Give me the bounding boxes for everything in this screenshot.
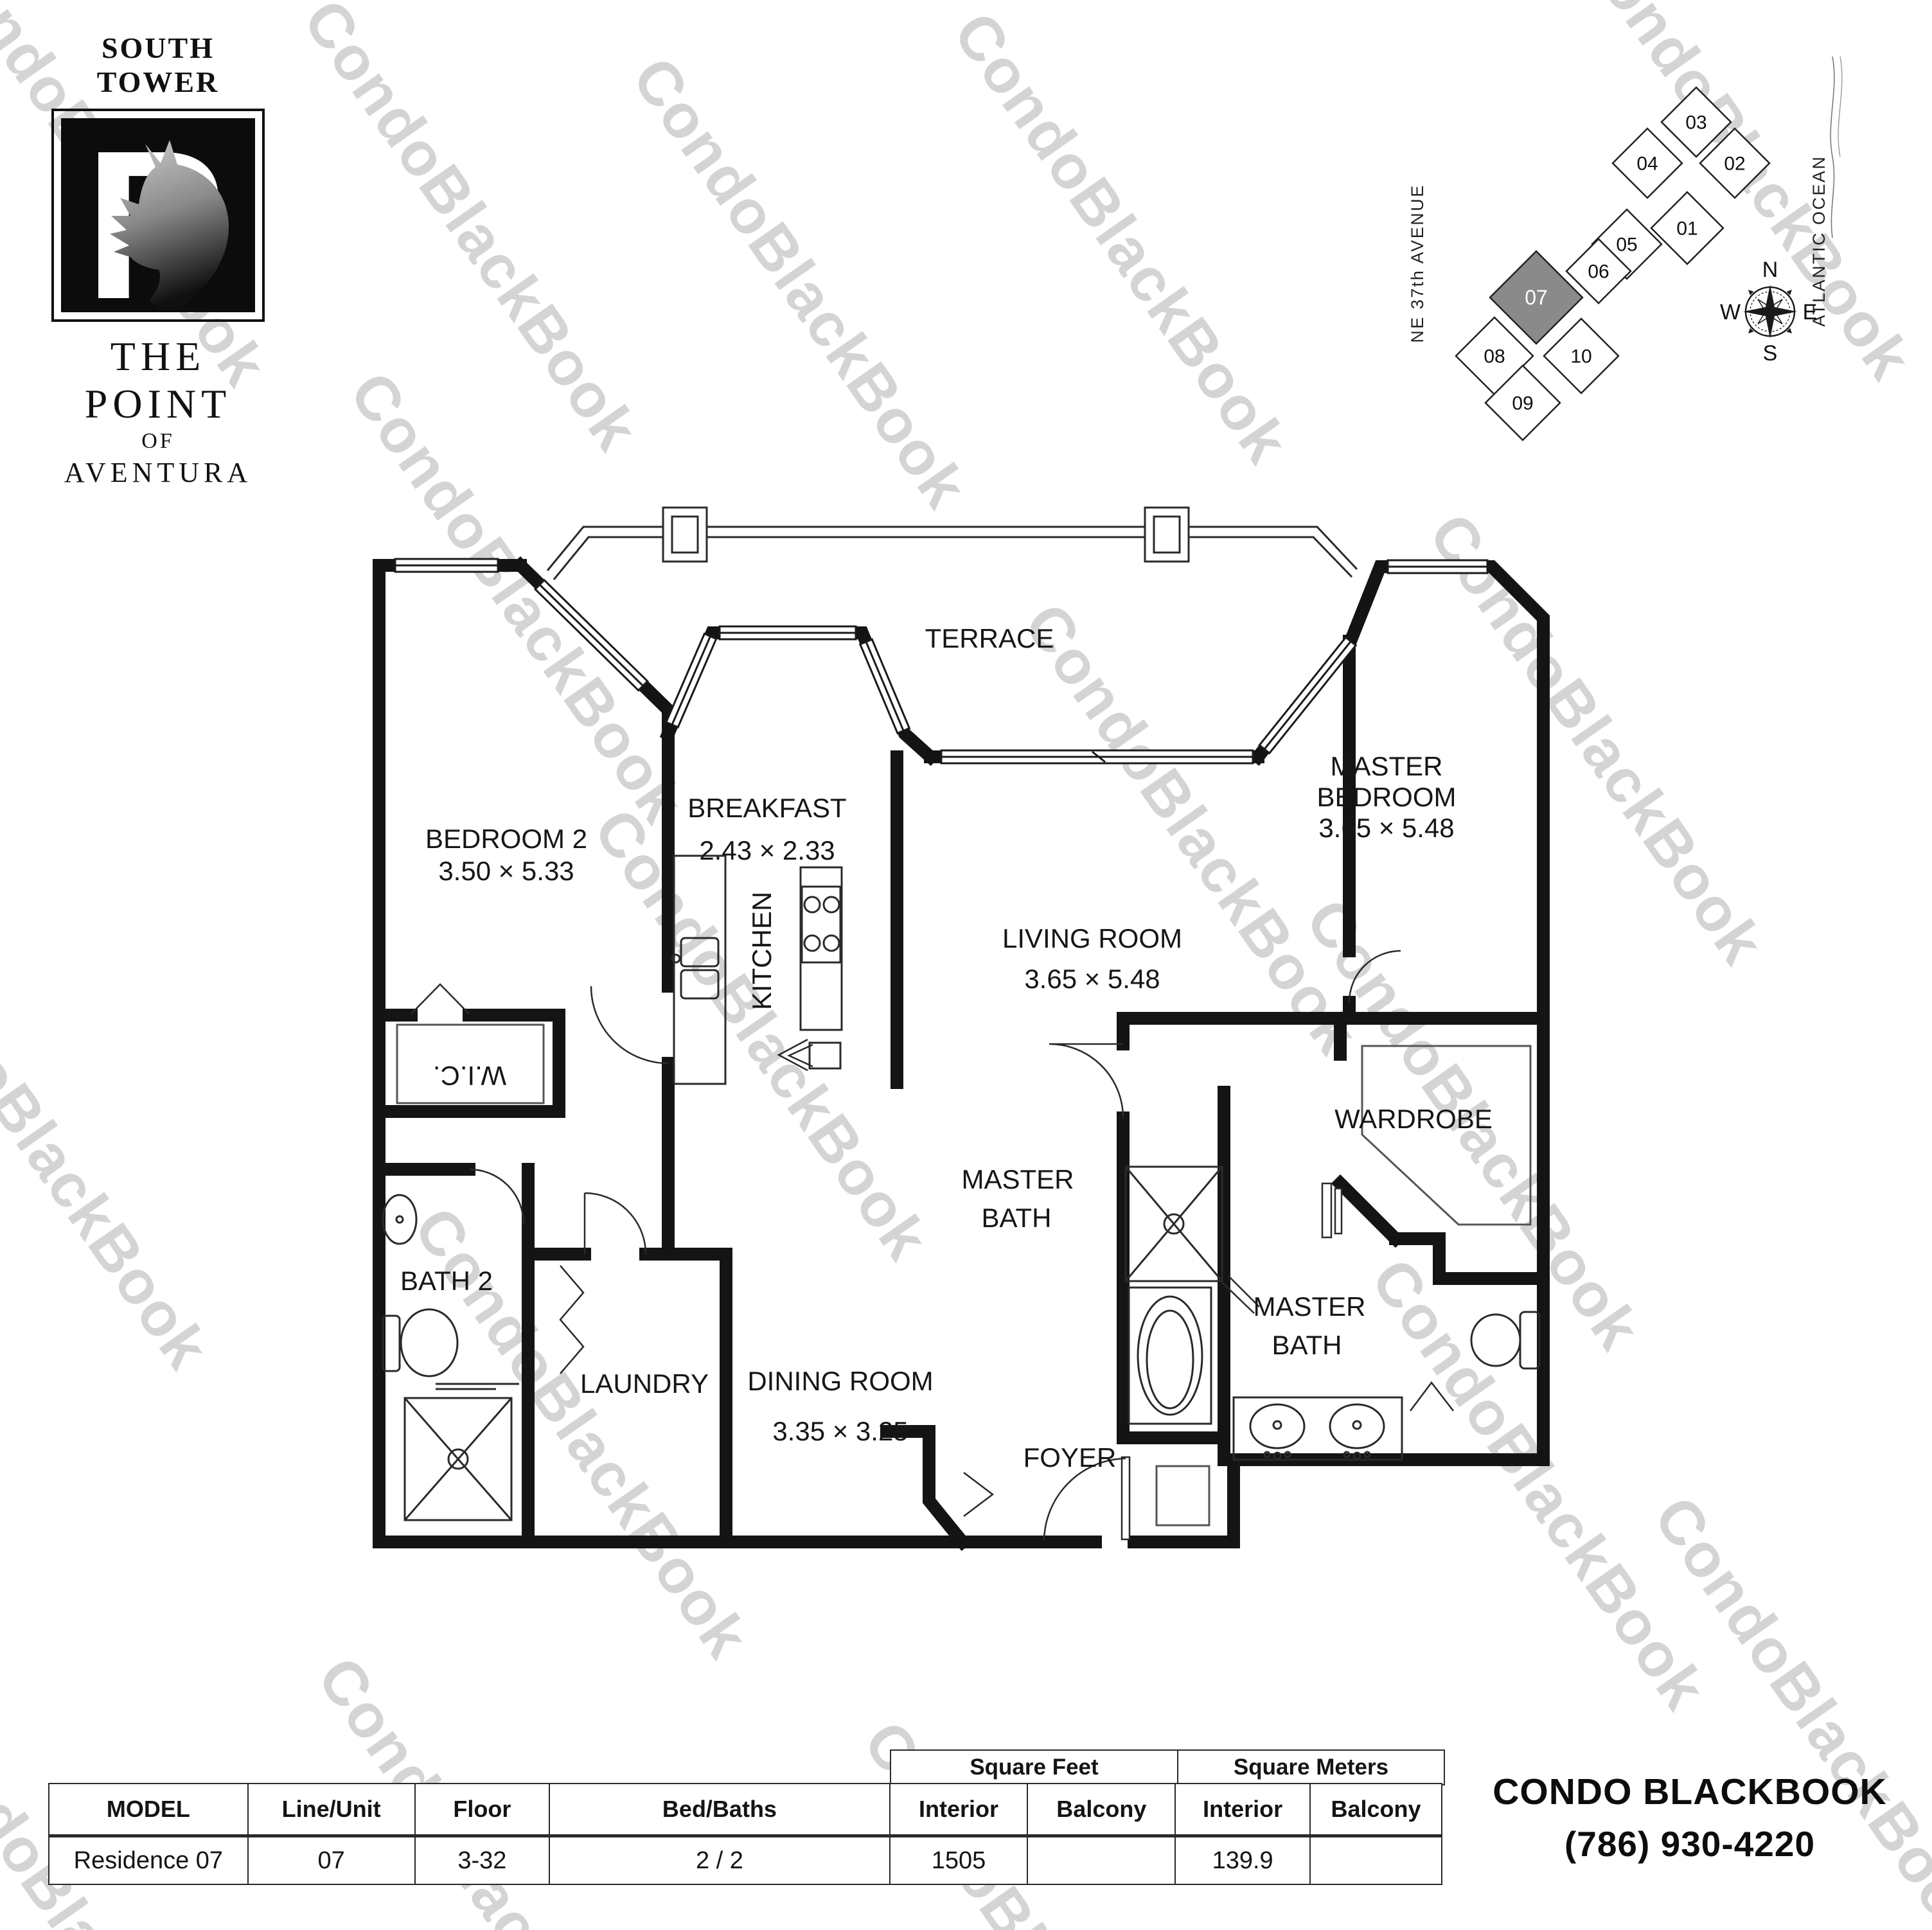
bath2-sink-drain [396,1216,403,1223]
window-bedroom2-top [395,559,498,572]
room-label-master-bath-right-1: MASTER [1253,1291,1365,1322]
bath2-door-arc [469,1169,524,1224]
window-bedroom2-diagonal [535,580,648,691]
keyplan-unit-label: 04 [1636,154,1658,175]
compass-north-label: N [1762,258,1778,282]
col-header-sm-interior: Interior [1175,1784,1310,1836]
keyplan-unit-10: 10 [1544,319,1618,393]
cell-bed-baths: 2 / 2 [549,1836,889,1885]
logo-monogram-graphic: P [51,108,265,323]
bath2-shower [405,1398,511,1520]
shoreline-line [1830,57,1834,238]
master-toilet-bowl [1471,1315,1520,1366]
room-label-living: LIVING ROOM [1002,923,1182,953]
kitchen-pantry-chevron [779,1040,813,1070]
table-header-row: MODEL Line/Unit Floor Bed/Baths Interior… [49,1784,1442,1836]
table-row: Residence 07 07 3-32 2 / 2 1505 139.9 [49,1836,1442,1885]
compass-east-label: E [1803,300,1818,324]
room-label-master-bedroom-1: MASTER [1330,751,1442,781]
keyplan-unit-label: 02 [1724,154,1745,175]
room-label-master-bedroom-2: BEDROOM [1316,782,1456,812]
window-breakfast-bay-right [860,639,910,733]
compass-rose: N S E W [1720,258,1817,366]
keyplan-unit-label: 07 [1525,286,1548,309]
unit-floorplan: TERRACE BREAKFAST 2.43 × 2.33 BEDROOM 2 … [360,501,1581,1568]
master-bedroom-door-arc [1349,951,1401,1002]
building-name-line3: AVENTURA [46,456,270,489]
cell-sm-balcony [1310,1836,1442,1885]
room-label-dining: DINING ROOM [747,1366,933,1396]
col-header-sf-interior: Interior [890,1784,1028,1836]
col-header-model: MODEL [49,1784,248,1836]
shoreline-line-2 [1838,57,1842,157]
bath2-sink [383,1195,416,1244]
room-dims-breakfast: 2.43 × 2.33 [699,835,835,865]
kitchen-fridge [810,1043,840,1068]
bedroom2-door-arc [591,986,668,1063]
wardrobe-slider-door [1322,1183,1331,1237]
laundry-door-arc [585,1193,646,1254]
room-label-wic: W.I.C. [433,1061,506,1091]
brand-phone: (786) 930-4220 [1478,1823,1902,1864]
group-header-square-meters: Square Meters [1177,1749,1445,1785]
group-header-square-feet: Square Feet [890,1749,1178,1785]
walls [379,565,1543,1542]
window-breakfast-bay-left [666,633,716,727]
foyer-closet-chevron [964,1473,993,1516]
cell-floor: 3-32 [415,1836,550,1885]
terrace-railing [547,508,1357,580]
col-header-line-unit: Line/Unit [248,1784,415,1836]
wic-door-chevron [411,984,469,1014]
watermark-text: CondoBlackBook [939,0,1302,476]
window-living-room [941,750,1253,763]
building-keyplan: NE 37th AVENUE ATLANTIC OCEAN 03 04 02 0… [1375,51,1876,450]
keyplan-units: 03 04 02 01 05 06 [1456,87,1769,440]
cell-sm-interior: 139.9 [1175,1836,1310,1885]
col-header-floor: Floor [415,1784,550,1836]
keyplan-unit-label: 03 [1685,112,1706,134]
room-label-wardrobe: WARDROBE [1334,1104,1493,1134]
keyplan-unit-label: 08 [1484,346,1505,367]
room-dims-dining: 3.35 × 3.25 [772,1416,908,1446]
building-logo: SOUTH TOWER P THE POINT OF AVENTURA [46,31,270,489]
kitchen-stove [802,887,840,962]
col-header-sf-balcony: Balcony [1027,1784,1175,1836]
room-dims-master-bedroom: 3.65 × 5.48 [1318,813,1454,843]
keyplan-unit-label: 10 [1570,346,1591,367]
compass-south-label: S [1763,341,1778,366]
keyplan-unit-01: 01 [1651,192,1723,264]
building-name-line2: OF [46,429,270,454]
master-shower [1126,1167,1222,1281]
floorplan-brochure-page: CondoBlackBook CondoBlackBook CondoBlack… [0,0,1932,1930]
room-dims-bedroom2: 3.50 × 5.33 [438,856,574,886]
brand-name: CONDO BLACKBOOK [1478,1771,1902,1813]
room-label-breakfast: BREAKFAST [687,793,846,823]
window-master-bedroom-top [1388,560,1487,573]
foyer-closet [1157,1466,1209,1525]
window-breakfast-bay-top [720,626,856,639]
keyplan-unit-label: 05 [1616,235,1637,256]
room-label-laundry: LAUNDRY [580,1368,709,1399]
building-name-line1: THE POINT [46,333,270,428]
room-label-bath2: BATH 2 [400,1266,493,1296]
tower-label: SOUTH TOWER [46,31,270,99]
room-label-terrace: TERRACE [925,623,1054,653]
col-header-bed-baths: Bed/Baths [549,1784,889,1836]
room-label-kitchen: KITCHEN [747,892,777,1010]
master-vanity [1234,1397,1402,1460]
entry-door-leaf [1122,1457,1130,1539]
cell-sf-interior: 1505 [890,1836,1028,1885]
kitchen-sink-bowl-2 [681,970,718,998]
master-tub [1129,1288,1211,1424]
keyplan-unit-label: 09 [1512,393,1533,414]
watermark-text: CondoBlackBook [0,906,223,1382]
col-header-sm-balcony: Balcony [1310,1784,1442,1836]
brand-block: CONDO BLACKBOOK (786) 930-4220 [1478,1771,1902,1864]
room-label-master-bath-center-1: MASTER [961,1164,1074,1194]
cell-sf-balcony [1027,1836,1175,1885]
linen-door-chevron [1410,1383,1453,1411]
wardrobe-slider-door-2 [1335,1189,1342,1234]
room-dims-living: 3.65 × 5.48 [1024,964,1160,994]
room-label-bedroom2: BEDROOM 2 [425,824,587,854]
watermark-text: CondoBlackBook [618,45,981,521]
room-label-master-bath-center-2: BATH [982,1203,1052,1233]
master-bath-door-arc [1049,1044,1123,1118]
bath2-towel-bar [436,1384,519,1389]
room-label-foyer: FOYER [1024,1442,1117,1473]
keyplan-unit-label: 06 [1588,261,1609,283]
bath2-toilet-bowl [401,1309,457,1376]
keyplan-unit-04: 04 [1613,128,1682,198]
wardrobe-closet-outline [1362,1046,1530,1225]
cell-model: Residence 07 [49,1836,248,1885]
compass-west-label: W [1720,300,1741,324]
watermark-text: CondoBlackBook [289,0,652,463]
windows [395,559,1487,763]
master-toilet-tank [1520,1312,1539,1368]
window-terrace-right-diagonal [1259,637,1356,753]
kitchen-sink-bowl-1 [681,938,718,966]
room-label-master-bath-right-2: BATH [1272,1330,1342,1360]
laundry-bifold-door [560,1266,583,1374]
cell-line-unit: 07 [248,1836,415,1885]
keyplan-unit-label: 01 [1676,218,1697,240]
street-label: NE 37th AVENUE [1408,184,1427,343]
unit-spec-table: MODEL Line/Unit Floor Bed/Baths Interior… [48,1783,1442,1885]
